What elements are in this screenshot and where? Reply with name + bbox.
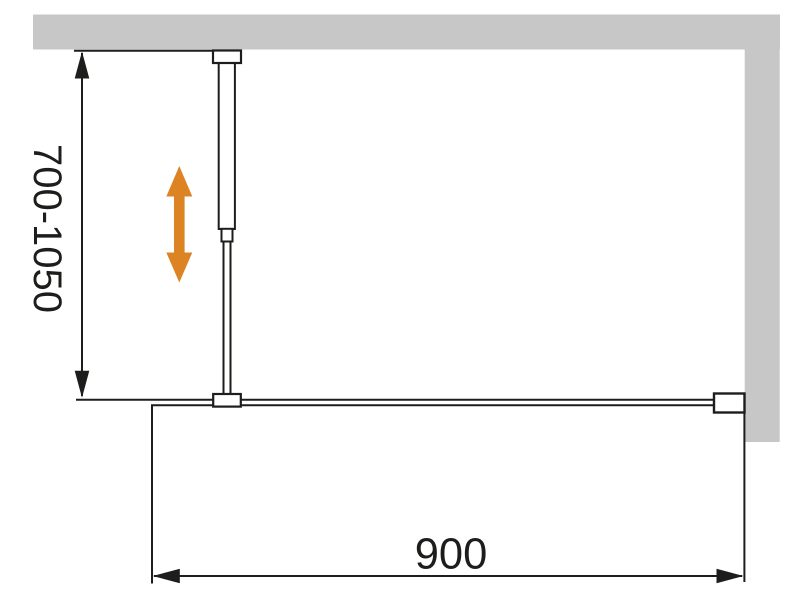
svg-text:900: 900 xyxy=(415,531,488,579)
svg-text:700-1050: 700-1050 xyxy=(25,144,69,313)
